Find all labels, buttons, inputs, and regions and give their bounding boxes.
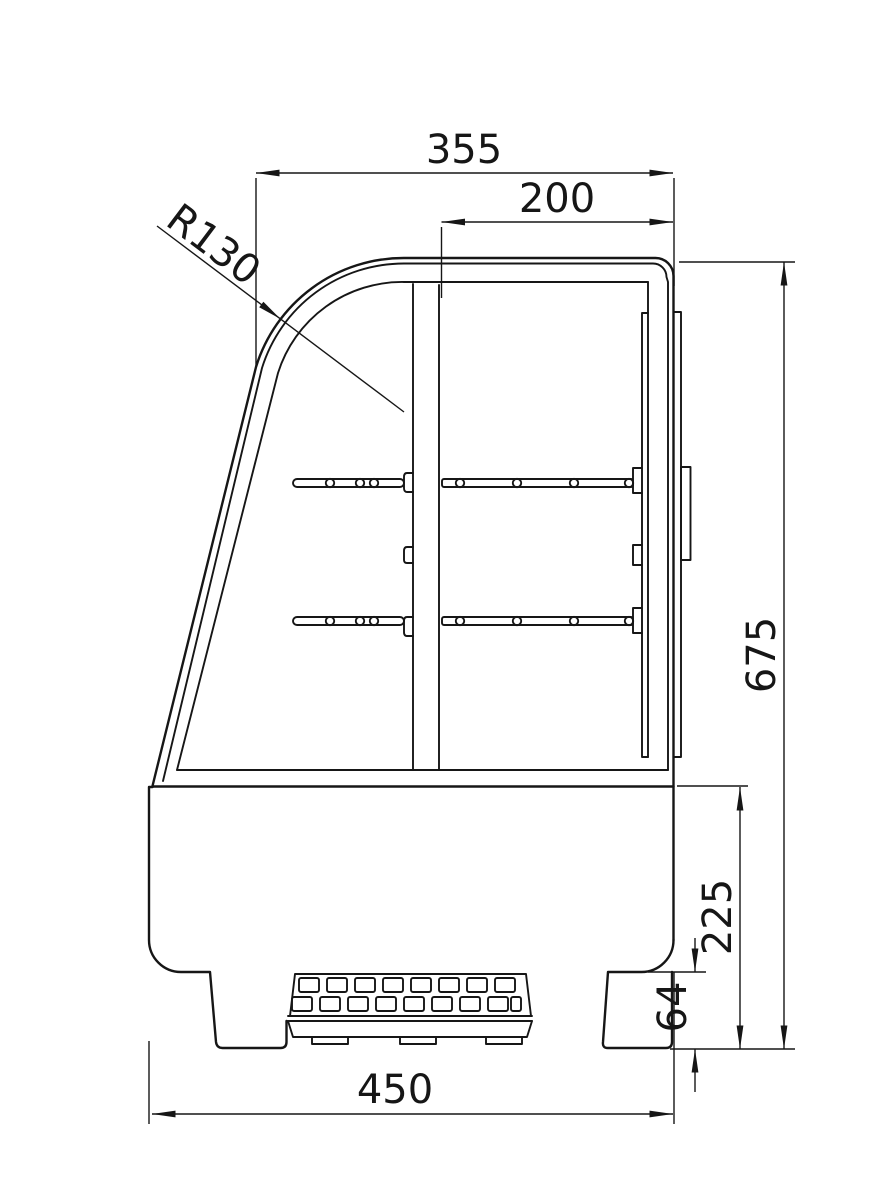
vent-slot-row-top [299, 978, 515, 992]
shelf-rivet [570, 479, 578, 487]
shelf-upper [293, 479, 633, 487]
vent-band-lines [288, 1016, 532, 1021]
vent-assembly [288, 974, 532, 1044]
dimension-labels: 355 200 R130 675 225 64 450 [158, 127, 785, 1113]
shelf-rivet [326, 617, 334, 625]
center-post [404, 284, 439, 770]
post-hook-middle [404, 547, 413, 563]
vent-foot-tab [400, 1037, 436, 1044]
dimension-annotations [149, 173, 795, 1124]
shelf-rivet [513, 479, 521, 487]
glass-inner-line [163, 263, 668, 781]
door-bracket-top [633, 468, 642, 493]
shelf-upper-left-span [293, 479, 404, 487]
shelf-rivet [456, 617, 464, 625]
dim-label-radius: R130 [158, 195, 269, 294]
dim-label-lower-body-height: 225 [695, 879, 741, 955]
door-bracket-bottom [633, 608, 642, 633]
shelf-rivet [625, 479, 633, 487]
shelf-rivet [356, 479, 364, 487]
base-left-outline [149, 787, 287, 1048]
dim-label-overall-height: 675 [739, 617, 785, 693]
shelf-rivet [513, 617, 521, 625]
shelf-rivet [370, 617, 378, 625]
shelf-rivet [356, 617, 364, 625]
vent-foot-tab [312, 1037, 348, 1044]
shelf-upper-right-span [442, 479, 633, 487]
dim-top-width [256, 173, 674, 366]
shelf-rivet [456, 479, 464, 487]
door-bracket-middle [633, 545, 642, 565]
shelf-rivet [570, 617, 578, 625]
shelf-rivet [370, 479, 378, 487]
door-handle [681, 467, 691, 560]
vent-foot-tab [486, 1037, 522, 1044]
post-hook-bottom [404, 617, 413, 636]
case-body [149, 258, 674, 1048]
vent-bottom-plate [288, 1021, 532, 1037]
shelf-lower-left-span [293, 617, 404, 625]
rear-door [633, 282, 691, 757]
post-hook-top [404, 473, 413, 492]
dim-label-bottom-width: 450 [357, 1067, 433, 1113]
dim-label-foot-height: 64 [650, 982, 696, 1033]
dim-top-inner-width [442, 222, 674, 298]
drawing-canvas: 355 200 R130 675 225 64 450 [0, 0, 887, 1200]
shelf-lower [293, 617, 633, 625]
dim-label-top-width: 355 [426, 127, 502, 173]
dim-label-top-inner-width: 200 [519, 176, 595, 222]
display-case-technical-drawing: 355 200 R130 675 225 64 450 [0, 0, 887, 1200]
shelf-rivet [326, 479, 334, 487]
shelf-lower-right-span [442, 617, 633, 625]
shelf-rivet [625, 617, 633, 625]
radius-arrowhead [259, 302, 280, 319]
vent-slot-row-bottom [292, 997, 521, 1011]
